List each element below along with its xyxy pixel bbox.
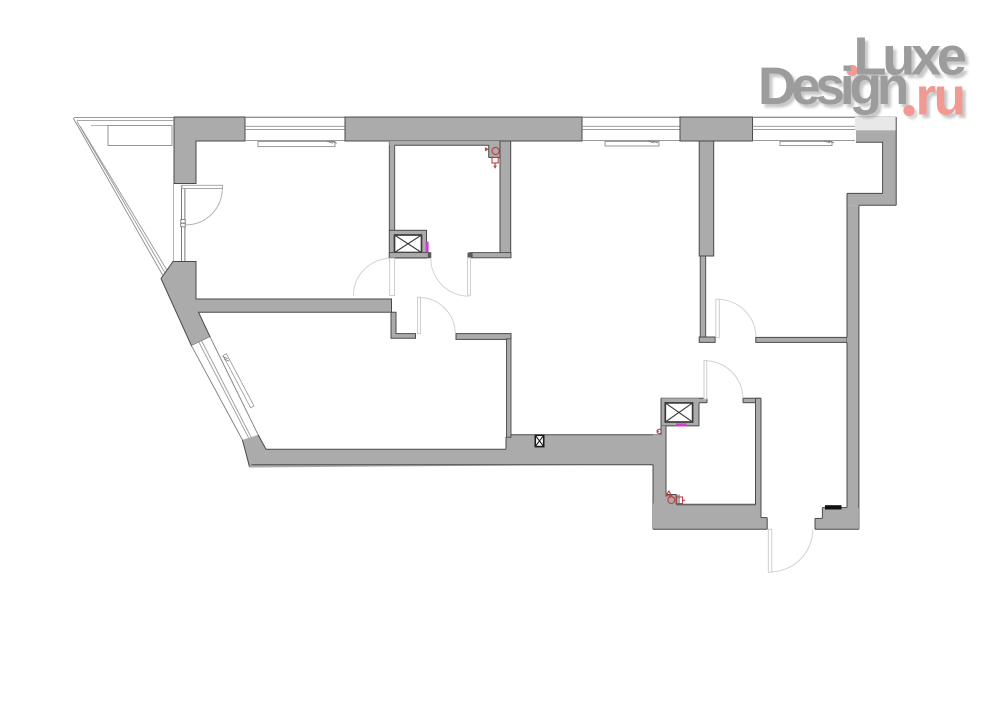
svg-text:Design: Design <box>758 57 907 116</box>
svg-text:ru: ru <box>916 68 964 127</box>
